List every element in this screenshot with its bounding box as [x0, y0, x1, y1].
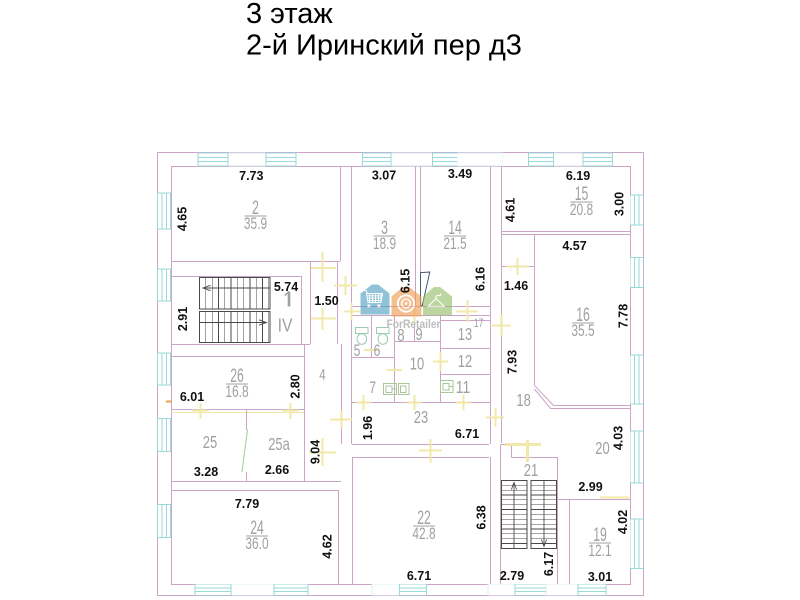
svg-text:4.02: 4.02 — [616, 510, 630, 534]
svg-text:9: 9 — [415, 324, 422, 344]
svg-text:7.79: 7.79 — [235, 497, 259, 511]
svg-text:3.07: 3.07 — [372, 169, 396, 183]
svg-text:17: 17 — [474, 316, 484, 330]
svg-text:2.79: 2.79 — [500, 569, 524, 583]
svg-text:3.28: 3.28 — [194, 465, 218, 479]
svg-text:3.01: 3.01 — [588, 570, 612, 584]
svg-text:13: 13 — [458, 324, 472, 344]
svg-text:2.91: 2.91 — [176, 307, 190, 331]
svg-text:12.1: 12.1 — [588, 541, 611, 560]
svg-text:6.16: 6.16 — [474, 267, 488, 291]
svg-text:1.96: 1.96 — [361, 416, 375, 440]
svg-text:1.46: 1.46 — [504, 279, 528, 293]
svg-text:7: 7 — [369, 379, 376, 397]
svg-text:2.66: 2.66 — [265, 463, 289, 477]
svg-text:25a: 25a — [268, 434, 290, 454]
svg-text:23: 23 — [414, 407, 428, 427]
svg-text:35.9: 35.9 — [244, 214, 267, 233]
svg-text:6.17: 6.17 — [542, 552, 556, 576]
svg-text:6.71: 6.71 — [455, 427, 479, 441]
svg-text:42.8: 42.8 — [412, 524, 435, 543]
svg-text:35.5: 35.5 — [571, 321, 594, 340]
svg-text:7.78: 7.78 — [617, 304, 631, 328]
svg-text:18.9: 18.9 — [373, 234, 396, 253]
svg-text:7.93: 7.93 — [506, 350, 520, 374]
svg-text:10: 10 — [410, 354, 425, 374]
svg-text:2.99: 2.99 — [578, 480, 602, 494]
svg-text:5.74: 5.74 — [274, 280, 298, 294]
svg-text:2-й Иринский пер д3: 2-й Иринский пер д3 — [246, 30, 522, 62]
svg-text:6.38: 6.38 — [475, 505, 489, 529]
svg-text:25: 25 — [203, 432, 217, 452]
svg-text:6.19: 6.19 — [566, 169, 590, 183]
svg-text:8: 8 — [397, 325, 404, 345]
svg-text:20: 20 — [595, 438, 610, 458]
svg-text:36.0: 36.0 — [245, 534, 268, 553]
svg-text:6.01: 6.01 — [180, 390, 204, 404]
svg-text:IV: IV — [278, 316, 293, 336]
svg-text:6.15: 6.15 — [399, 269, 413, 293]
svg-text:11: 11 — [456, 377, 470, 397]
svg-text:3.49: 3.49 — [448, 167, 472, 181]
svg-text:3 этаж: 3 этаж — [246, 0, 333, 30]
svg-text:9.04: 9.04 — [309, 440, 323, 464]
svg-text:4.62: 4.62 — [321, 534, 335, 558]
svg-text:4.61: 4.61 — [504, 198, 518, 222]
svg-text:4.03: 4.03 — [612, 426, 626, 450]
svg-text:4.57: 4.57 — [562, 239, 586, 253]
svg-text:12: 12 — [458, 351, 472, 371]
svg-text:21.5: 21.5 — [443, 234, 466, 253]
svg-text:4: 4 — [319, 367, 326, 384]
svg-text:7.73: 7.73 — [239, 169, 263, 183]
svg-text:16.8: 16.8 — [225, 382, 248, 401]
svg-text:2.80: 2.80 — [289, 374, 303, 398]
svg-text:ForRetailer: ForRetailer — [387, 319, 441, 331]
svg-text:21: 21 — [524, 460, 538, 480]
svg-text:3.00: 3.00 — [613, 192, 627, 216]
svg-text:20.8: 20.8 — [570, 200, 593, 219]
svg-text:4.65: 4.65 — [176, 207, 190, 231]
svg-text:6.71: 6.71 — [407, 569, 431, 583]
svg-text:5: 5 — [354, 342, 361, 360]
svg-text:6: 6 — [374, 342, 381, 360]
svg-text:18: 18 — [516, 390, 530, 410]
svg-text:1.50: 1.50 — [314, 294, 338, 308]
